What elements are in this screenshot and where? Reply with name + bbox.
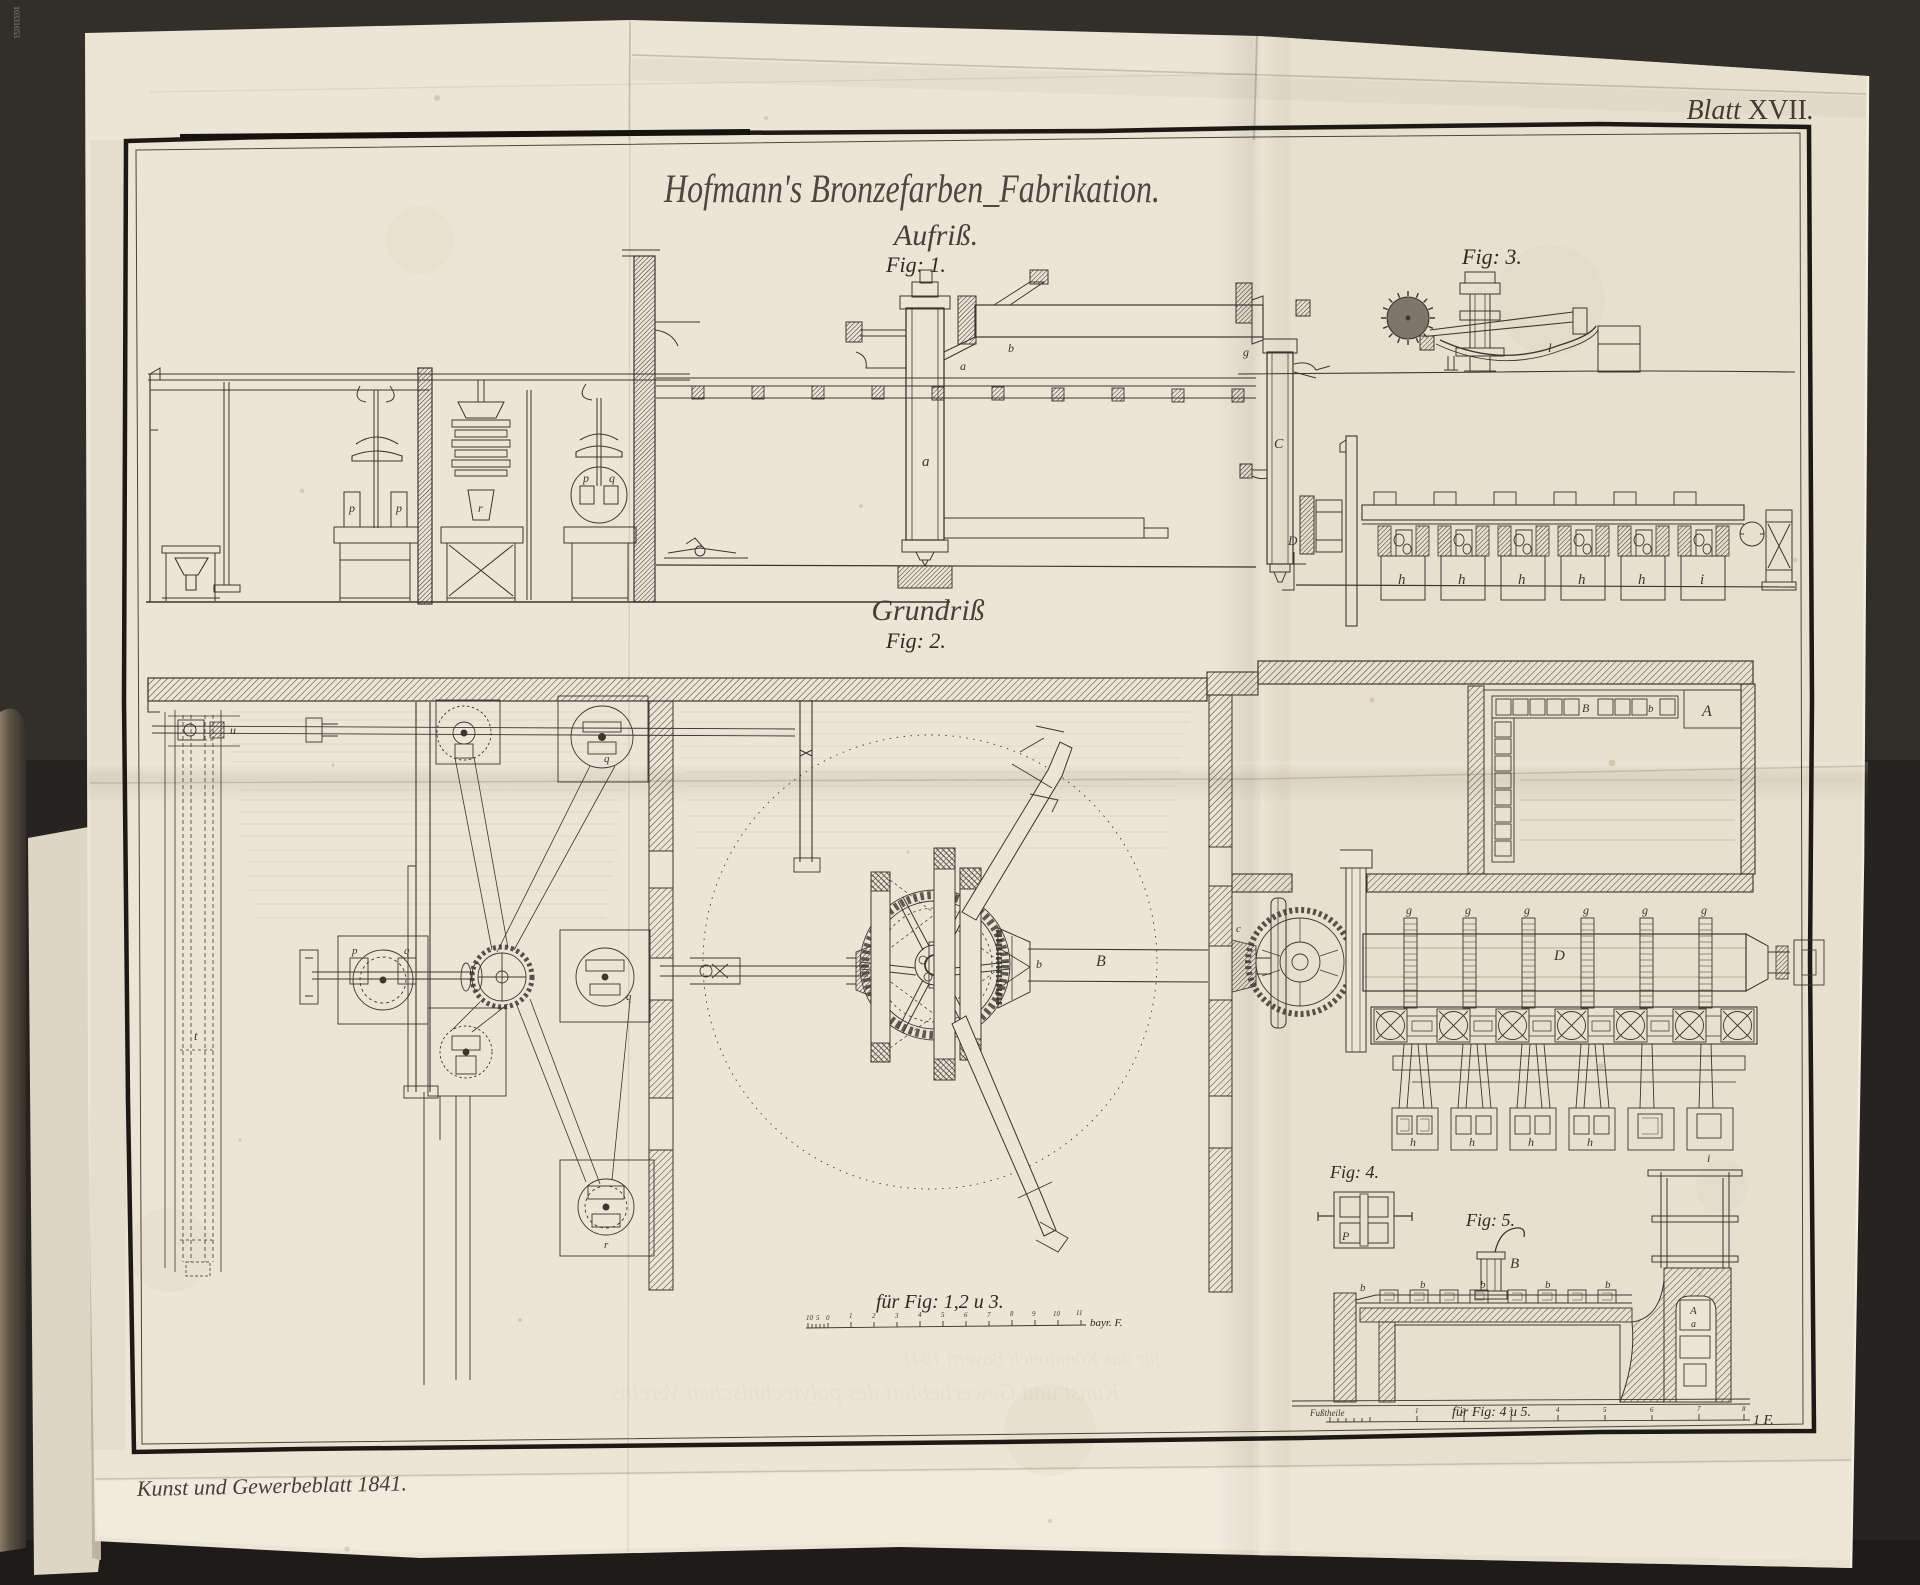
svg-text:D: D xyxy=(1287,533,1298,548)
svg-text:b: b xyxy=(1008,341,1014,355)
svg-text:q: q xyxy=(609,471,615,485)
svg-text:6: 6 xyxy=(964,1311,968,1319)
svg-text:g: g xyxy=(1406,903,1412,917)
svg-text:0: 0 xyxy=(826,1314,830,1322)
svg-text:Kunst und Gewerbeblatt des pol: Kunst und Gewerbeblatt des polytechnisch… xyxy=(611,1380,1121,1406)
svg-text:Fig: 5.: Fig: 5. xyxy=(1465,1210,1515,1230)
svg-text:10: 10 xyxy=(1053,1310,1061,1318)
svg-text:für Fig: 1,2 u 3.: für Fig: 1,2 u 3. xyxy=(876,1291,1004,1313)
svg-text:B: B xyxy=(1582,701,1590,715)
svg-text:l: l xyxy=(1548,340,1552,355)
svg-text:b: b xyxy=(1036,957,1042,971)
svg-text:b: b xyxy=(1545,1279,1551,1291)
svg-text:h: h xyxy=(1410,1135,1416,1149)
svg-text:a: a xyxy=(922,454,930,470)
svg-text:Fig: 1.: Fig: 1. xyxy=(885,252,946,277)
svg-text:8: 8 xyxy=(1010,1310,1014,1318)
svg-text:b: b xyxy=(1648,703,1654,715)
svg-text:1 F.: 1 F. xyxy=(1753,1413,1774,1428)
svg-text:5: 5 xyxy=(941,1311,945,1319)
svg-text:a: a xyxy=(1691,1319,1696,1330)
svg-text:1: 1 xyxy=(1415,1407,1419,1415)
svg-text:bayr. F.: bayr. F. xyxy=(1090,1317,1123,1329)
svg-text:3: 3 xyxy=(894,1312,899,1320)
svg-text:2: 2 xyxy=(1462,1407,1466,1415)
svg-text:r: r xyxy=(604,1239,609,1251)
svg-text:g: g xyxy=(1583,903,1589,917)
svg-text:7: 7 xyxy=(987,1311,991,1319)
svg-text:g: g xyxy=(1701,903,1707,917)
svg-text:h: h xyxy=(1587,1135,1593,1149)
svg-text:Fußtheile: Fußtheile xyxy=(1309,1408,1345,1418)
svg-text:P: P xyxy=(1341,1229,1350,1243)
svg-text:b: b xyxy=(1480,1279,1486,1291)
svg-text:10331653: 10331653 xyxy=(12,6,21,38)
svg-text:q: q xyxy=(404,945,410,957)
svg-text:c: c xyxy=(1236,923,1241,935)
svg-text:p: p xyxy=(351,945,358,957)
svg-text:8: 8 xyxy=(1742,1405,1746,1413)
svg-text:r: r xyxy=(478,501,483,515)
svg-text:b: b xyxy=(1420,1279,1426,1291)
svg-text:B: B xyxy=(1510,1256,1519,1272)
svg-text:D: D xyxy=(1553,948,1565,964)
svg-text:b: b xyxy=(1605,1279,1611,1291)
svg-text:i: i xyxy=(1707,1151,1710,1165)
svg-text:q: q xyxy=(604,753,610,765)
svg-text:C: C xyxy=(1274,437,1284,452)
svg-text:1: 1 xyxy=(849,1312,853,1320)
svg-text:g: g xyxy=(1243,345,1249,359)
svg-text:p: p xyxy=(348,501,355,515)
svg-text:g: g xyxy=(1642,903,1648,917)
svg-text:9: 9 xyxy=(1032,1310,1036,1318)
svg-text:g: g xyxy=(1524,903,1530,917)
svg-text:4: 4 xyxy=(918,1311,922,1319)
svg-text:A: A xyxy=(1689,1305,1697,1317)
svg-text:i: i xyxy=(1700,572,1704,588)
svg-text:2: 2 xyxy=(872,1312,876,1320)
svg-text:g: g xyxy=(1465,903,1471,917)
svg-text:B: B xyxy=(1096,953,1106,970)
svg-text:Fig: 3.: Fig: 3. xyxy=(1461,244,1522,269)
svg-text:a: a xyxy=(960,359,966,373)
svg-text:7: 7 xyxy=(1697,1405,1701,1413)
svg-text:11: 11 xyxy=(1076,1309,1082,1317)
svg-text:6: 6 xyxy=(1650,1406,1654,1414)
svg-text:A: A xyxy=(1701,703,1712,720)
svg-text:h: h xyxy=(1469,1135,1475,1149)
svg-text:für das Königreich Bayern 1841: für das Königreich Bayern 1841 xyxy=(902,1348,1160,1370)
svg-text:Grundriß: Grundriß xyxy=(871,594,984,627)
svg-text:Fig: 4.: Fig: 4. xyxy=(1329,1162,1379,1182)
svg-text:Hofmann's Bronzefarben_Fabrika: Hofmann's Bronzefarben_Fabrikation. xyxy=(663,166,1160,211)
svg-text:u: u xyxy=(230,723,236,737)
svg-text:5: 5 xyxy=(816,1314,820,1322)
svg-text:q: q xyxy=(626,991,632,1003)
svg-text:Blatt XVII.: Blatt XVII. xyxy=(1686,95,1814,126)
svg-text:p: p xyxy=(582,471,589,485)
svg-text:p: p xyxy=(395,501,402,515)
svg-text:3: 3 xyxy=(1508,1406,1513,1414)
svg-text:h: h xyxy=(1638,572,1646,588)
svg-text:5: 5 xyxy=(1603,1406,1607,1414)
svg-text:Aufriß.: Aufriß. xyxy=(892,219,978,252)
svg-text:t: t xyxy=(194,1028,198,1043)
svg-text:4: 4 xyxy=(1556,1406,1560,1414)
svg-text:Fig: 2.: Fig: 2. xyxy=(885,628,946,653)
svg-text:b: b xyxy=(1360,1282,1366,1294)
svg-text:10: 10 xyxy=(806,1314,814,1322)
svg-text:h: h xyxy=(1528,1135,1534,1149)
